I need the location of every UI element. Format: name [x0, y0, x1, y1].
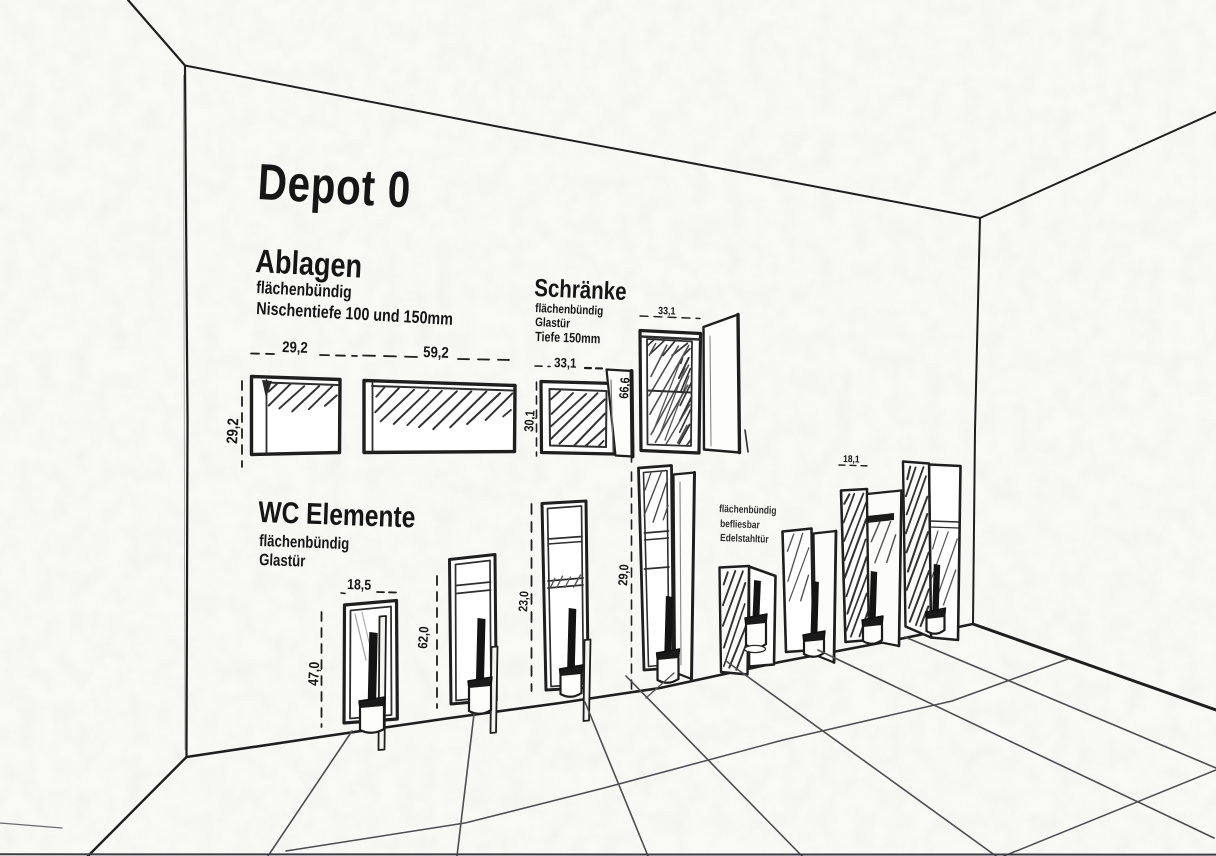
svg-text:Schränke: Schränke	[534, 273, 627, 305]
svg-text:Edelstahltür: Edelstahltür	[720, 532, 769, 546]
svg-text:33,1: 33,1	[554, 355, 577, 371]
svg-text:30,1: 30,1	[521, 409, 538, 432]
svg-text:befliesbar: befliesbar	[720, 518, 760, 532]
svg-text:Depot 0: Depot 0	[256, 152, 412, 218]
svg-text:66,6: 66,6	[616, 376, 633, 399]
svg-text:59,2: 59,2	[423, 344, 449, 362]
svg-text:29,0: 29,0	[615, 563, 632, 586]
svg-text:18,5: 18,5	[347, 576, 372, 593]
svg-text:WC Elemente: WC Elemente	[258, 495, 416, 534]
svg-text:29,2: 29,2	[282, 339, 308, 357]
svg-text:Glastür: Glastür	[259, 551, 306, 571]
svg-text:33,1: 33,1	[658, 305, 676, 317]
svg-text:47,0: 47,0	[305, 661, 322, 686]
svg-text:flächenbündig: flächenbündig	[719, 503, 777, 517]
svg-text:29,2: 29,2	[224, 418, 243, 444]
svg-text:18,1: 18,1	[843, 453, 860, 464]
svg-text:62,0: 62,0	[415, 626, 432, 649]
svg-text:Tiefe 150mm: Tiefe 150mm	[535, 329, 601, 347]
svg-text:23,0: 23,0	[516, 591, 531, 613]
